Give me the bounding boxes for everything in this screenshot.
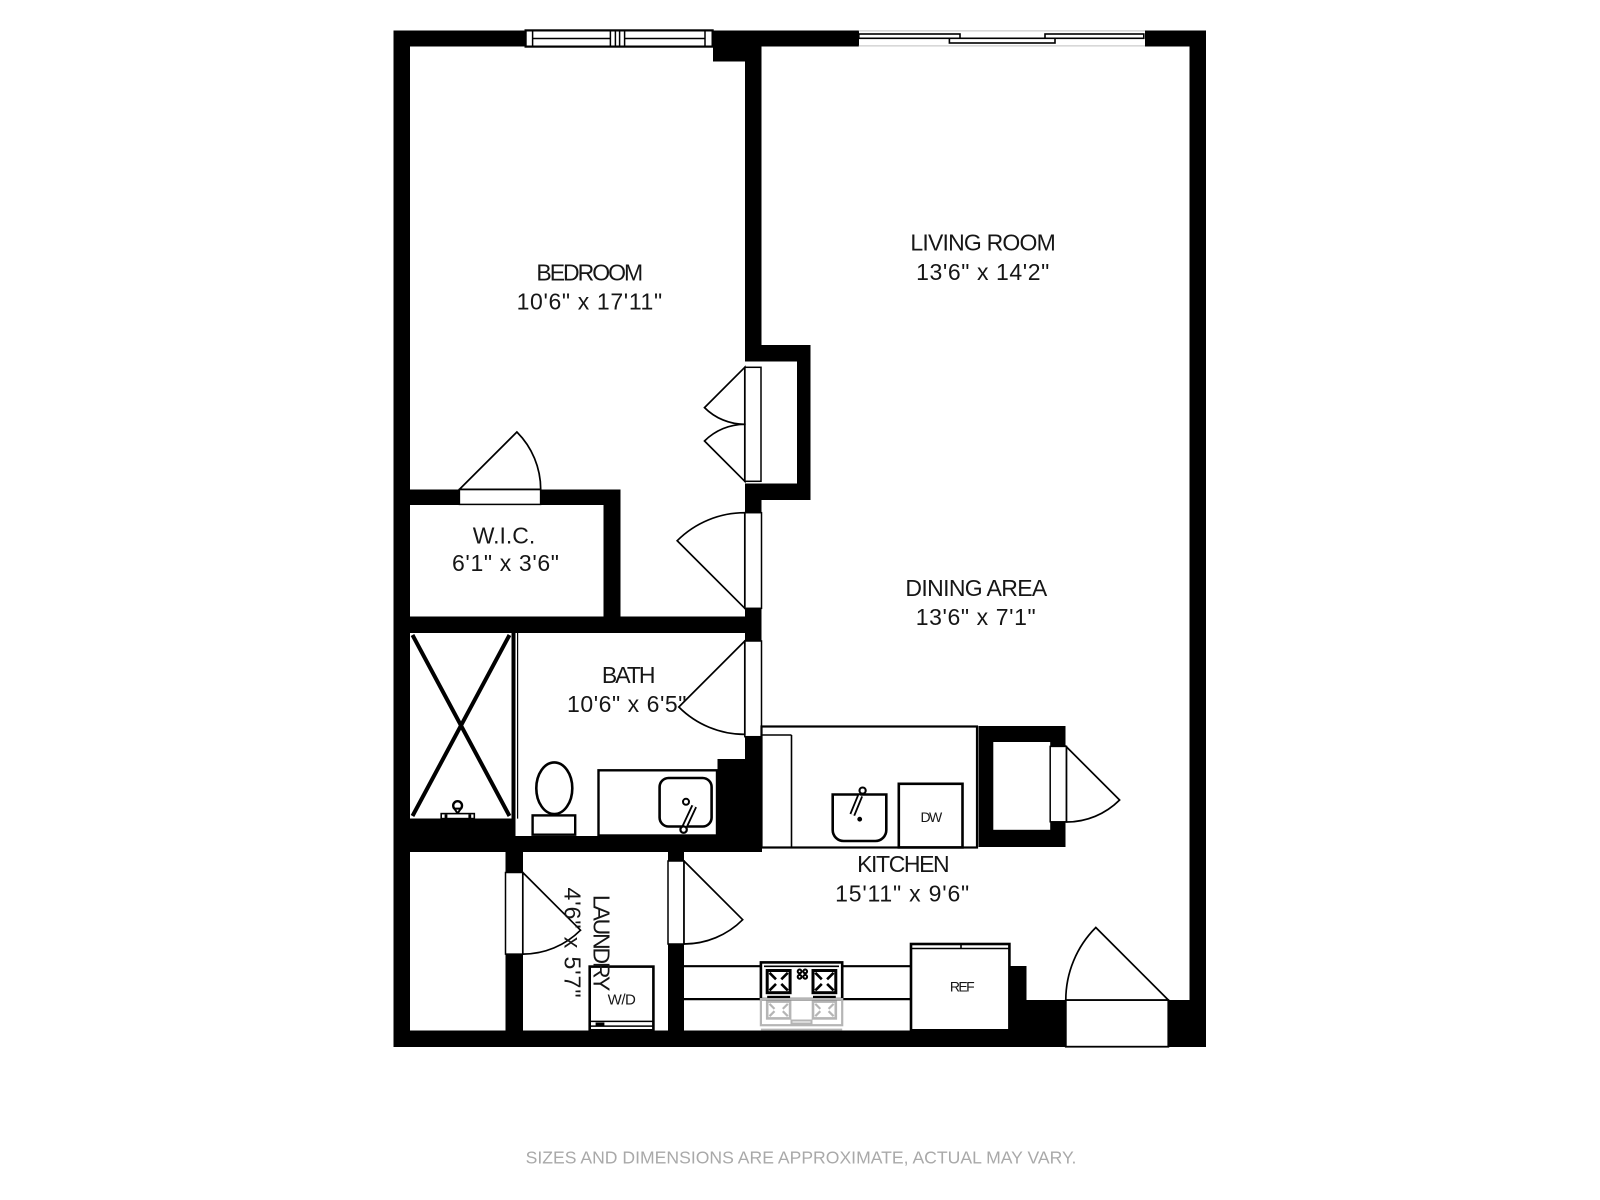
svg-text:BEDROOM: BEDROOM (536, 259, 642, 285)
svg-text:KITCHEN: KITCHEN (857, 851, 948, 877)
svg-text:4'6" x 5'7": 4'6" x 5'7" (560, 888, 586, 999)
svg-text:W.I.C.: W.I.C. (473, 523, 536, 549)
svg-text:10'6" x 17'11": 10'6" x 17'11" (517, 289, 663, 315)
svg-text:DW: DW (921, 809, 944, 825)
svg-text:DINING AREA: DINING AREA (905, 575, 1048, 601)
svg-text:LAUNDRY: LAUNDRY (589, 895, 615, 991)
svg-text:REF: REF (950, 979, 974, 995)
svg-text:13'6" x 7'1": 13'6" x 7'1" (916, 604, 1037, 630)
svg-text:SIZES AND DIMENSIONS ARE APPRO: SIZES AND DIMENSIONS ARE APPROXIMATE, AC… (526, 1147, 1077, 1167)
svg-text:15'11" x 9'6": 15'11" x 9'6" (835, 881, 970, 907)
svg-text:W/D: W/D (608, 992, 636, 1009)
svg-text:6'1" x 3'6": 6'1" x 3'6" (452, 550, 560, 576)
svg-text:BATH: BATH (602, 662, 654, 688)
svg-text:LIVING ROOM: LIVING ROOM (910, 230, 1055, 256)
svg-text:10'6" x 6'5": 10'6" x 6'5" (567, 691, 687, 717)
svg-text:13'6" x 14'2": 13'6" x 14'2" (916, 259, 1050, 285)
